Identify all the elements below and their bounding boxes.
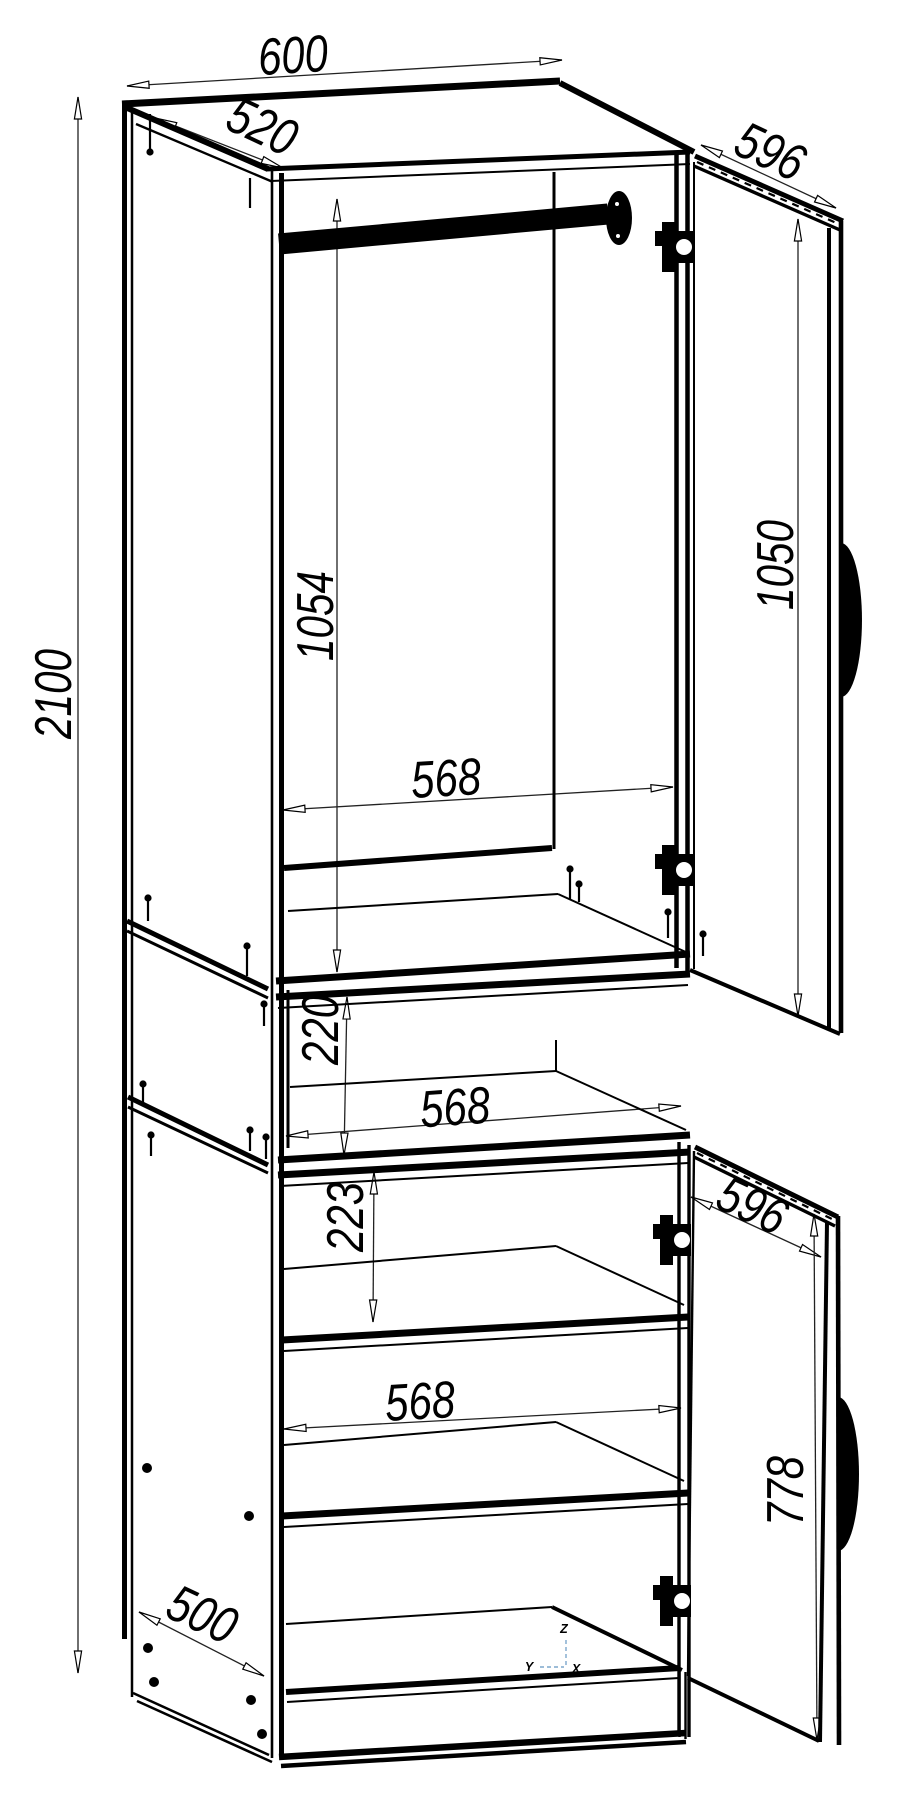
- svg-text:X: X: [571, 1662, 581, 1676]
- svg-text:1054: 1054: [287, 571, 345, 661]
- svg-text:568: 568: [383, 1371, 456, 1433]
- svg-text:1050: 1050: [747, 520, 805, 610]
- svg-text:Z: Z: [559, 1622, 569, 1636]
- svg-text:600: 600: [256, 25, 329, 87]
- svg-text:778: 778: [757, 1456, 815, 1526]
- svg-text:568: 568: [409, 748, 482, 810]
- svg-text:2100: 2100: [25, 649, 83, 740]
- svg-text:568: 568: [418, 1077, 492, 1140]
- svg-text:223: 223: [317, 1182, 375, 1253]
